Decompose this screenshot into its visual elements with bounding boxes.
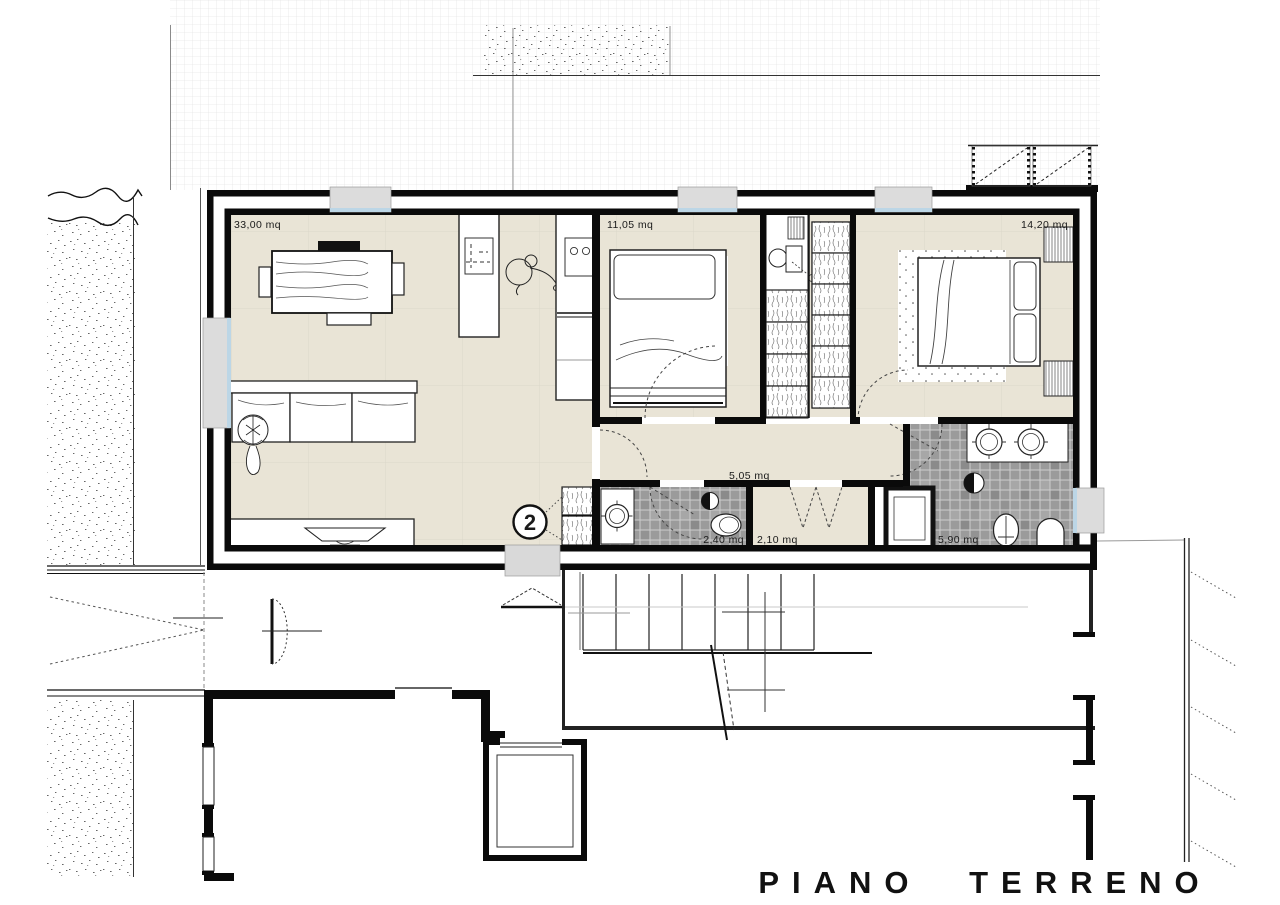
lower-floor-outline: [202, 688, 505, 881]
label-bath2-area: 5,90 mq: [938, 534, 979, 546]
chair-icon: [259, 267, 271, 297]
plan-title: PIANO TERRENO: [758, 865, 1211, 900]
pillow-icon: [1014, 314, 1036, 362]
pillow-icon: [614, 255, 715, 299]
label-bedroom2-area: 14,20 mq: [1021, 219, 1068, 231]
exterior-door-leaf-symbol: [262, 599, 322, 664]
shelf-icon: [788, 217, 804, 239]
chair-icon: [327, 313, 371, 325]
section-arrow-dashed: [50, 572, 204, 690]
wardrobe-column-b: [812, 222, 850, 408]
kitchen-counter: [556, 213, 596, 400]
door-right: [1073, 488, 1104, 533]
label-hallway-area: 5,05 mq: [729, 470, 770, 482]
floor-plan-sheet: 2 33,00 mq 11,05 mq 14,20 mq 5,05 mq 2,4…: [0, 0, 1280, 905]
window-left: [203, 318, 231, 428]
pillow-icon: [1014, 262, 1036, 310]
toilet-icon: [1037, 519, 1064, 549]
chair-icon: [392, 263, 404, 295]
wardrobe-boxes: [766, 290, 808, 417]
sink-icon: [606, 505, 629, 528]
terrain-strip-lower-left: [47, 690, 205, 877]
sink-icon: [1018, 429, 1044, 455]
desk-chair-icon: [769, 249, 787, 267]
label-bedroom1-area: 11,05 mq: [607, 219, 653, 231]
kitchen-island: [459, 212, 499, 337]
terrain-strip-left: [47, 188, 223, 618]
unit-number: 2: [524, 510, 536, 535]
sink-icon: [976, 429, 1002, 455]
lower-shower-box: [486, 738, 584, 858]
stairwell: [562, 570, 1095, 740]
chair-icon: [318, 241, 360, 251]
label-closet-area: 2,10 mq: [757, 534, 798, 546]
entrance-door: [501, 545, 563, 607]
bed-bedroom2: [918, 258, 1040, 366]
window-top-1: [330, 187, 391, 212]
right-lower-wall-openings: [1073, 632, 1095, 860]
floor-plan-drawing: 2 33,00 mq 11,05 mq 14,20 mq 5,05 mq 2,4…: [0, 0, 1280, 905]
washer-cabinet: [562, 487, 595, 545]
stair-break-line: [711, 645, 727, 740]
boundary-fence: [1097, 538, 1236, 867]
label-bath1-area: 2,40 mq: [703, 534, 744, 546]
entrance-arrow-icon: [503, 588, 561, 605]
window-top-3: [875, 187, 932, 212]
bed-bedroom1: [610, 250, 726, 407]
window-top-2: [678, 187, 737, 212]
label-living-area: 33,00 mq: [234, 219, 281, 231]
wardrobe-column-a: [766, 214, 816, 418]
dining-table: [259, 241, 404, 325]
